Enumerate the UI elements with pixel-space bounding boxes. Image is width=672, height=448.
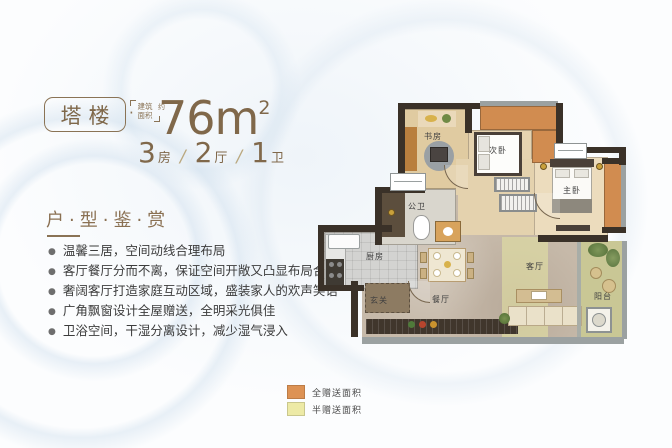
dining-chair (467, 252, 474, 263)
plate (433, 252, 441, 260)
dining-chair (420, 252, 427, 263)
title-underline (47, 235, 80, 237)
stove-burner (337, 273, 342, 278)
feature-text: 温馨三居，空间动线合理布局 (63, 244, 226, 258)
tv-cabinet (538, 235, 608, 242)
room-label-dining: 餐厅 (432, 294, 450, 305)
bedroom-count: 3 (138, 136, 156, 169)
legend-label-half: 半赠送面积 (312, 403, 362, 416)
wall-segment (556, 103, 563, 147)
dining-chair (467, 268, 474, 279)
toilet (413, 215, 430, 240)
section-title: 户·型·鉴·赏 (46, 206, 170, 232)
cabinet-plant (408, 321, 415, 328)
bath-sink-basin (443, 227, 453, 236)
wardrobe (494, 177, 530, 192)
balcony-chair (590, 267, 602, 279)
bullet-icon: ● (48, 326, 56, 340)
bullet-icon: ● (48, 246, 56, 260)
hall-count: 2 (195, 136, 213, 169)
balcony-plant (588, 243, 608, 257)
center-dish (444, 261, 451, 268)
stove-burner (337, 262, 342, 267)
stove-burner (329, 262, 334, 267)
room-label-bathroom: 公卫 (408, 201, 426, 212)
cabinet-plant (419, 321, 426, 328)
wall-segment (480, 101, 558, 106)
study-desk (430, 147, 448, 162)
bath-unit: 卫 (271, 147, 284, 166)
wall-segment (351, 281, 358, 337)
feature-text: 奢阔客厅打造家庭互动区域，盛装家人的欢声笑语 (63, 284, 338, 298)
area-note-line2: 面积 (134, 111, 156, 120)
area-note-line1: 建筑 (134, 102, 156, 111)
slash-separator: / (180, 147, 186, 167)
master-bed-pillow (555, 169, 570, 178)
wall-segment (621, 161, 626, 233)
bath-light (388, 209, 395, 216)
master-bed-pillow (574, 169, 589, 178)
plate (453, 252, 461, 260)
room-label-bedroom2: 次卧 (489, 145, 507, 156)
legend-swatch-full (287, 385, 305, 399)
tower-badge: 塔楼 (44, 97, 126, 132)
feature-text: 广角飘窗设计全屋赠送，全明采光俱佳 (63, 304, 276, 318)
gift-area-top (480, 106, 558, 130)
washing-machine-door (592, 313, 606, 327)
wall-segment (622, 241, 627, 339)
wall-segment (602, 158, 626, 164)
stove-burner (329, 273, 334, 278)
plate (433, 269, 441, 277)
room-label-kitchen: 厨房 (366, 251, 384, 262)
bullet-icon: ● (48, 286, 56, 300)
study-cabinet (405, 127, 417, 171)
room-label-master: 主卧 (563, 185, 581, 196)
plate (453, 269, 461, 277)
hall-unit: 厅 (214, 147, 227, 166)
feature-text: 卫浴空间，干湿分离设计，减少湿气浸入 (63, 324, 288, 338)
room-label-balcony: 阳台 (594, 291, 612, 302)
study-bowl (425, 115, 437, 122)
bedside-lamp (540, 163, 547, 170)
legend-swatch-half (287, 402, 305, 416)
master-bed-bench (556, 225, 590, 231)
legend-item-half-gift: 半赠送面积 (287, 402, 362, 416)
balcony-divider (577, 241, 581, 337)
wall-segment (322, 225, 392, 232)
wall-segment (375, 187, 382, 245)
room-label-study: 书房 (424, 131, 442, 142)
shoe-cabinet (366, 319, 518, 334)
floor-plan: 书房 次卧 主卧 公卫 厨房 玄关 餐厅 客厅 阳台 (318, 101, 626, 345)
bedside-lamp (596, 163, 603, 170)
wall-segment (362, 337, 624, 344)
fridge (328, 234, 360, 249)
area-superscript: 2 (258, 97, 270, 119)
wardrobe (499, 194, 537, 212)
room-label-foyer: 玄关 (370, 295, 388, 306)
dining-chair (420, 268, 427, 279)
area-note: 建筑 面积 约 (134, 102, 156, 120)
room-label-living: 客厅 (526, 261, 544, 272)
bullet-icon: ● (48, 306, 56, 320)
wall-segment (318, 225, 324, 291)
living-plant (499, 313, 510, 324)
side-window (390, 173, 426, 191)
legend-item-full-gift: 全赠送面积 (287, 385, 362, 399)
coffee-table-tray (531, 291, 547, 300)
room-count-row: 3 房 / 2 厅 / 1 卫 (138, 136, 284, 169)
cabinet-plant (430, 321, 437, 328)
bullet-icon: ● (48, 266, 56, 280)
study-plant (442, 114, 451, 123)
bay-window (554, 143, 587, 159)
feature-text: 客厅餐厅分而不离，保证空间开敞又凸显布局合理 (63, 264, 338, 278)
balcony-plant (606, 249, 620, 267)
master-bed-headboard (550, 159, 594, 167)
slash-separator: / (236, 147, 242, 167)
wall-segment (602, 227, 626, 233)
legend-label-full: 全赠送面积 (312, 386, 362, 399)
bedroom2-pillow (478, 154, 490, 170)
wall-segment (465, 103, 472, 133)
bath-count: 1 (251, 136, 269, 169)
area-value: 76m2 (158, 84, 270, 142)
bedroom-unit: 房 (158, 147, 171, 166)
sofa (508, 306, 582, 326)
